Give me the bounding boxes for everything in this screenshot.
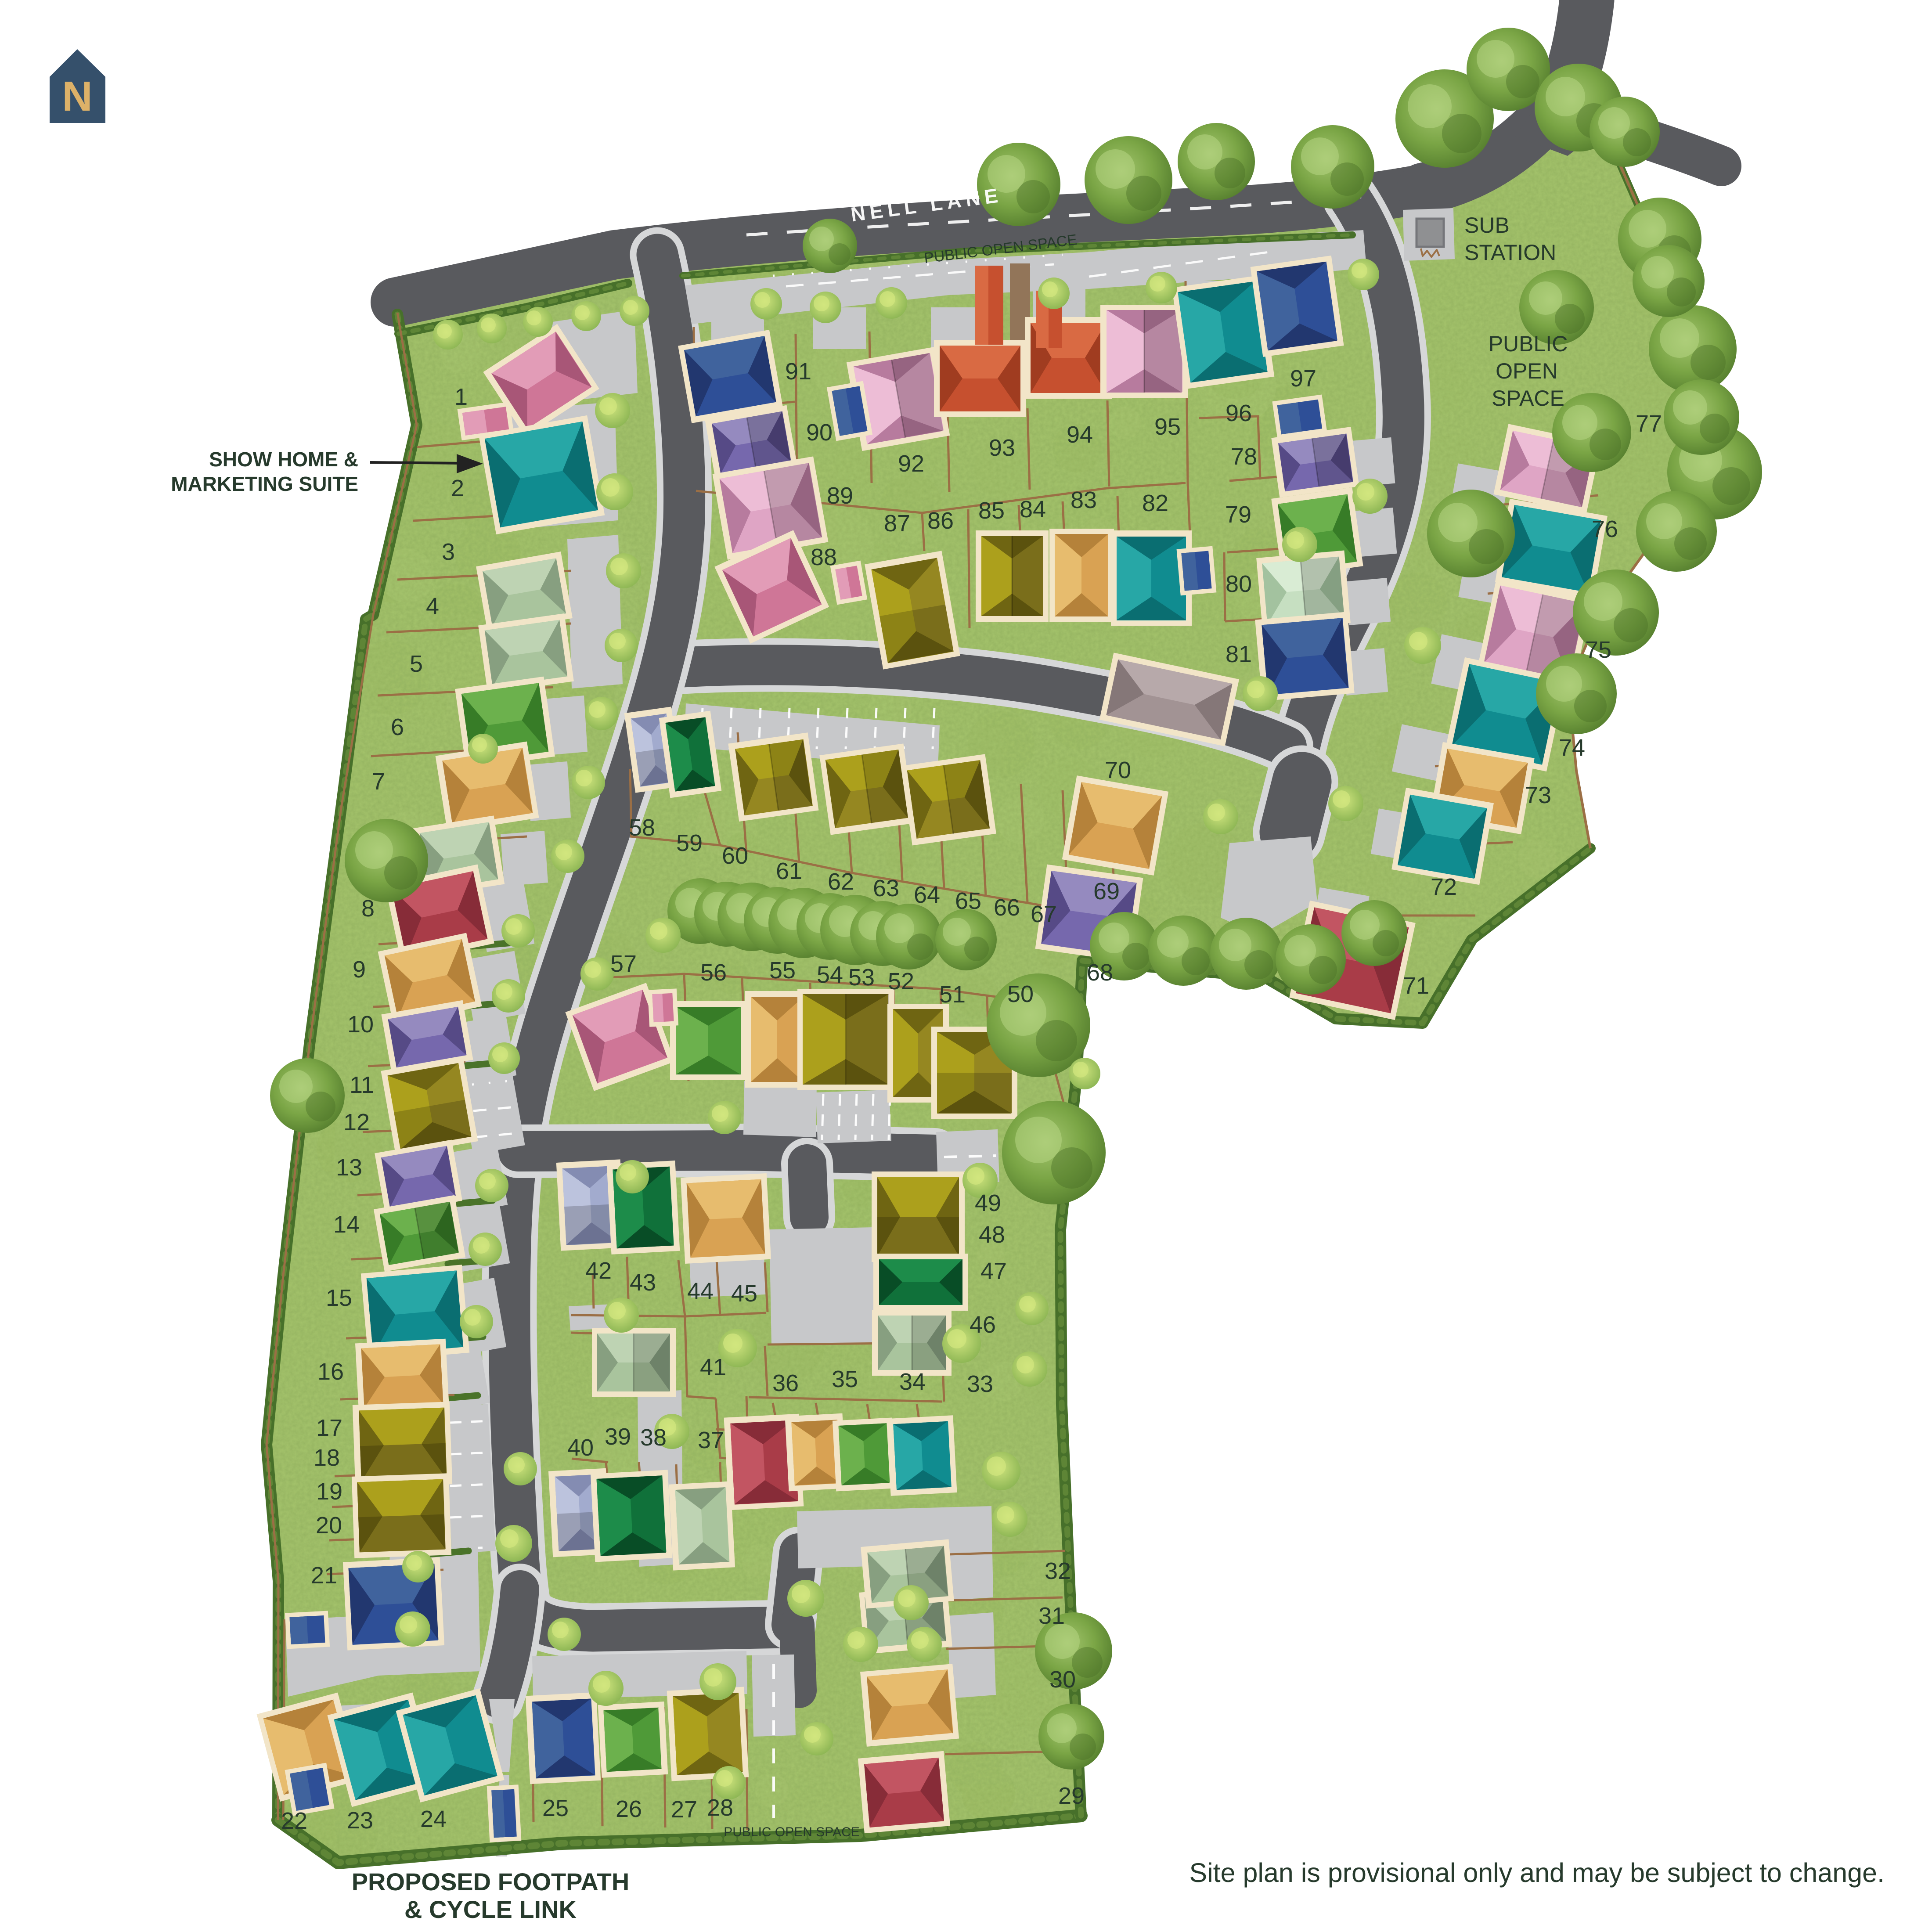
svg-text:96: 96 [1226,400,1252,426]
svg-text:94: 94 [1067,422,1093,448]
svg-text:89: 89 [827,483,853,509]
svg-text:28: 28 [707,1795,733,1821]
svg-text:67: 67 [1031,901,1057,927]
svg-text:15: 15 [326,1285,352,1311]
svg-text:34: 34 [899,1369,926,1395]
svg-text:46: 46 [970,1312,996,1338]
svg-text:84: 84 [1020,496,1046,523]
svg-text:65: 65 [955,888,981,914]
svg-text:10: 10 [347,1011,374,1038]
svg-text:12: 12 [343,1109,370,1135]
svg-text:23: 23 [347,1807,373,1834]
svg-text:62: 62 [828,869,854,895]
svg-text:21: 21 [311,1562,337,1589]
svg-text:90: 90 [806,419,833,446]
svg-text:33: 33 [967,1371,993,1397]
svg-text:85: 85 [978,497,1005,524]
svg-text:58: 58 [629,815,655,841]
svg-text:97: 97 [1290,365,1316,392]
svg-text:39: 39 [605,1424,631,1450]
svg-text:5: 5 [410,651,423,677]
svg-text:92: 92 [898,451,924,477]
svg-text:1: 1 [454,384,468,410]
svg-text:N: N [62,73,92,120]
svg-text:88: 88 [811,544,837,570]
svg-text:83: 83 [1071,487,1097,513]
svg-text:61: 61 [776,858,802,884]
svg-text:30: 30 [1049,1666,1076,1693]
svg-text:56: 56 [700,959,727,986]
svg-text:19: 19 [316,1478,342,1505]
svg-text:PUBLIC: PUBLIC [1489,332,1568,356]
svg-text:74: 74 [1559,735,1585,761]
svg-text:OPEN: OPEN [1496,359,1558,383]
svg-text:76: 76 [1592,516,1618,542]
svg-text:53: 53 [848,964,875,991]
svg-text:70: 70 [1105,757,1131,783]
svg-text:71: 71 [1403,973,1429,999]
svg-text:59: 59 [676,830,703,856]
svg-text:20: 20 [316,1512,342,1539]
svg-text:16: 16 [317,1359,344,1385]
svg-text:50: 50 [1007,981,1034,1007]
svg-text:43: 43 [630,1269,656,1296]
svg-text:48: 48 [979,1222,1005,1248]
svg-text:40: 40 [567,1435,594,1461]
svg-text:87: 87 [884,510,910,537]
svg-text:2: 2 [451,475,464,501]
svg-text:31: 31 [1038,1603,1065,1629]
svg-text:37: 37 [698,1427,724,1453]
svg-text:57: 57 [610,951,637,977]
svg-text:72: 72 [1431,874,1457,900]
svg-text:38: 38 [640,1424,667,1451]
svg-text:SHOW HOME &: SHOW HOME & [209,448,358,471]
svg-text:STATION: STATION [1464,240,1556,265]
svg-text:24: 24 [420,1806,447,1832]
svg-text:29: 29 [1058,1783,1085,1809]
svg-text:PROPOSED FOOTPATH: PROPOSED FOOTPATH [352,1868,630,1896]
svg-text:78: 78 [1231,443,1257,470]
svg-text:93: 93 [989,435,1015,461]
svg-text:54: 54 [817,962,843,988]
svg-text:14: 14 [333,1211,360,1238]
svg-text:Site plan is provisional only: Site plan is provisional only and may be… [1189,1858,1885,1888]
svg-text:79: 79 [1225,501,1251,528]
svg-text:27: 27 [671,1796,697,1823]
svg-text:41: 41 [700,1354,726,1381]
svg-text:SPACE: SPACE [1492,386,1564,411]
svg-text:68: 68 [1087,959,1113,986]
svg-text:82: 82 [1142,490,1168,516]
svg-text:42: 42 [585,1258,612,1284]
svg-text:6: 6 [391,714,404,740]
svg-text:45: 45 [731,1280,757,1307]
svg-text:13: 13 [336,1154,362,1181]
svg-text:75: 75 [1585,637,1611,663]
svg-text:64: 64 [914,882,940,908]
svg-text:SUB: SUB [1464,213,1510,238]
svg-text:69: 69 [1093,878,1120,905]
svg-text:49: 49 [975,1190,1001,1216]
svg-text:81: 81 [1226,641,1252,667]
svg-text:MARKETING SUITE: MARKETING SUITE [171,472,358,495]
svg-text:51: 51 [939,981,966,1008]
svg-text:7: 7 [372,768,385,795]
svg-text:8: 8 [361,895,375,922]
svg-text:18: 18 [314,1445,340,1471]
svg-text:17: 17 [316,1415,342,1441]
svg-text:95: 95 [1154,414,1181,440]
svg-text:77: 77 [1636,411,1662,437]
svg-text:9: 9 [353,956,366,983]
svg-text:60: 60 [722,843,748,869]
svg-text:86: 86 [927,508,954,534]
svg-text:66: 66 [994,894,1020,921]
svg-text:63: 63 [873,875,899,901]
svg-text:22: 22 [281,1808,307,1834]
svg-text:44: 44 [687,1278,714,1305]
svg-text:32: 32 [1045,1558,1071,1584]
svg-text:52: 52 [888,968,914,995]
svg-text:55: 55 [769,957,796,984]
svg-text:73: 73 [1525,782,1551,808]
svg-text:36: 36 [772,1370,799,1396]
svg-text:80: 80 [1226,571,1252,597]
svg-text:91: 91 [785,358,811,385]
svg-text:3: 3 [442,539,455,565]
svg-text:& CYCLE LINK: & CYCLE LINK [404,1896,577,1923]
svg-text:11: 11 [350,1072,374,1098]
svg-text:25: 25 [542,1795,569,1821]
svg-text:35: 35 [832,1366,858,1392]
svg-text:4: 4 [426,593,439,620]
svg-text:PUBLIC OPEN SPACE: PUBLIC OPEN SPACE [724,1825,860,1839]
svg-text:26: 26 [616,1796,642,1822]
svg-text:47: 47 [980,1258,1007,1284]
